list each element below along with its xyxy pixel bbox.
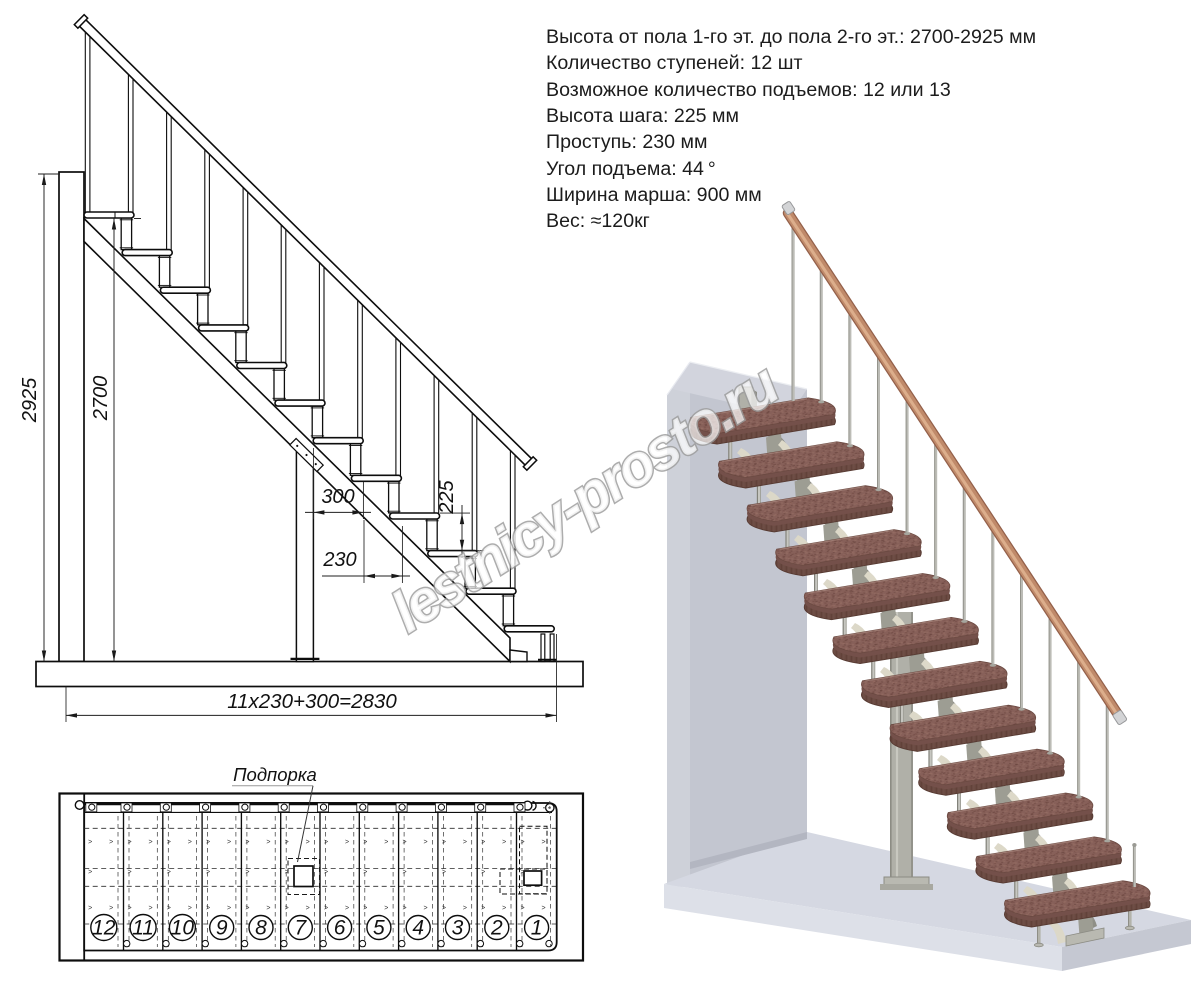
- svg-text:10: 10: [171, 917, 195, 940]
- svg-text:˃: ˃: [88, 869, 92, 876]
- svg-text:˃: ˃: [324, 839, 328, 846]
- svg-text:˃: ˃: [245, 869, 249, 876]
- svg-text:˃: ˃: [442, 905, 446, 912]
- svg-text:7: 7: [294, 917, 307, 940]
- svg-text:˃: ˃: [520, 869, 524, 876]
- svg-text:˃: ˃: [306, 905, 310, 912]
- svg-text:˃: ˃: [127, 839, 131, 846]
- svg-text:˃: ˃: [363, 905, 367, 912]
- svg-text:˃: ˃: [88, 839, 92, 846]
- svg-text:˃: ˃: [167, 905, 171, 912]
- svg-text:˃: ˃: [206, 905, 210, 912]
- svg-text:225: 225: [436, 479, 458, 514]
- svg-text:˃: ˃: [148, 905, 152, 912]
- svg-text:˃: ˃: [245, 839, 249, 846]
- svg-text:˃: ˃: [167, 869, 171, 876]
- svg-text:˃: ˃: [285, 839, 289, 846]
- svg-text:3: 3: [452, 917, 464, 940]
- svg-text:˃: ˃: [363, 869, 367, 876]
- svg-text:˃: ˃: [442, 839, 446, 846]
- svg-text:8: 8: [255, 917, 267, 940]
- svg-text:˃: ˃: [520, 905, 524, 912]
- svg-text:˃: ˃: [306, 839, 310, 846]
- svg-text:˃: ˃: [384, 839, 388, 846]
- svg-text:˃: ˃: [188, 905, 192, 912]
- svg-text:9: 9: [216, 917, 228, 940]
- svg-text:5: 5: [373, 917, 385, 940]
- svg-text:300: 300: [321, 486, 354, 508]
- svg-text:˃: ˃: [463, 905, 467, 912]
- svg-text:2: 2: [490, 917, 503, 940]
- svg-text:˃: ˃: [403, 869, 407, 876]
- svg-text:˃: ˃: [188, 839, 192, 846]
- svg-text:2700: 2700: [90, 376, 112, 422]
- svg-text:2925: 2925: [19, 377, 41, 423]
- svg-text:˃: ˃: [127, 869, 131, 876]
- svg-text:11: 11: [132, 917, 154, 940]
- svg-text:230: 230: [322, 549, 356, 571]
- svg-text:1: 1: [531, 917, 543, 940]
- svg-text:˃: ˃: [285, 869, 289, 876]
- svg-text:˃: ˃: [324, 869, 328, 876]
- svg-text:˃: ˃: [442, 869, 446, 876]
- svg-text:˃: ˃: [227, 839, 231, 846]
- svg-text:˃: ˃: [127, 905, 131, 912]
- svg-text:˃: ˃: [109, 839, 113, 846]
- svg-text:11x230+300=2830: 11x230+300=2830: [227, 690, 397, 713]
- svg-text:˃: ˃: [324, 905, 328, 912]
- svg-text:˃: ˃: [167, 839, 171, 846]
- svg-text:˃: ˃: [206, 839, 210, 846]
- svg-text:˃: ˃: [384, 905, 388, 912]
- svg-text:˃: ˃: [285, 905, 289, 912]
- svg-text:˃: ˃: [520, 839, 524, 846]
- svg-text:6: 6: [334, 917, 346, 940]
- svg-text:˃: ˃: [345, 839, 349, 846]
- svg-text:Подпорка: Подпорка: [233, 764, 317, 785]
- svg-text:˃: ˃: [403, 839, 407, 846]
- svg-text:˃: ˃: [502, 839, 506, 846]
- svg-text:˃: ˃: [481, 869, 485, 876]
- svg-text:˃: ˃: [345, 905, 349, 912]
- svg-text:˃: ˃: [88, 905, 92, 912]
- svg-text:˃: ˃: [541, 839, 545, 846]
- svg-text:˃: ˃: [481, 905, 485, 912]
- svg-text:4: 4: [412, 917, 424, 940]
- svg-text:˃: ˃: [109, 905, 113, 912]
- svg-text:˃: ˃: [206, 869, 210, 876]
- svg-text:˃: ˃: [424, 905, 428, 912]
- svg-text:˃: ˃: [245, 905, 249, 912]
- svg-text:˃: ˃: [541, 905, 545, 912]
- svg-text:˃: ˃: [148, 839, 152, 846]
- svg-text:˃: ˃: [463, 839, 467, 846]
- svg-text:˃: ˃: [481, 839, 485, 846]
- svg-text:˃: ˃: [502, 905, 506, 912]
- svg-text:12: 12: [92, 917, 116, 940]
- svg-text:˃: ˃: [424, 839, 428, 846]
- svg-text:˃: ˃: [266, 839, 270, 846]
- svg-text:˃: ˃: [363, 839, 367, 846]
- svg-text:˃: ˃: [403, 905, 407, 912]
- svg-text:˃: ˃: [227, 905, 231, 912]
- svg-text:˃: ˃: [266, 905, 270, 912]
